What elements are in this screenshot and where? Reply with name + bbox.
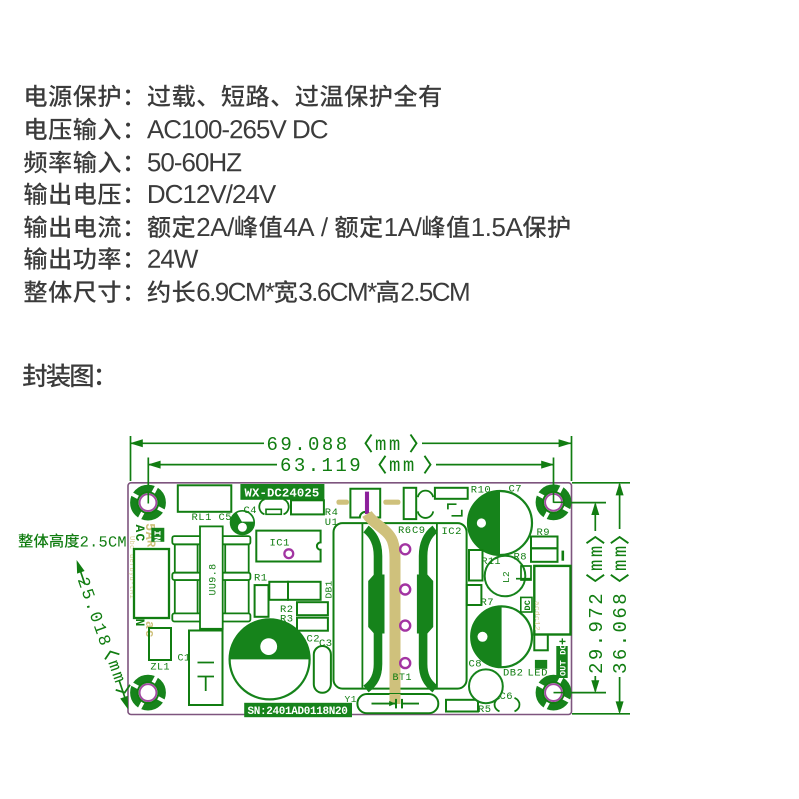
svg-text:C8: C8 [469, 659, 483, 671]
svg-text:L2: L2 [501, 571, 512, 583]
svg-text:SN:2401AD0118N20: SN:2401AD0118N20 [248, 706, 348, 718]
svg-text:C4: C4 [244, 505, 258, 517]
svg-text:mm: mm [586, 543, 608, 571]
svg-text:IC2: IC2 [442, 526, 462, 538]
svg-text:36.068: 36.068 [610, 591, 632, 674]
svg-text:acdc12: acdc12 [532, 601, 540, 631]
svg-text:mm: mm [610, 543, 632, 571]
svg-text:69.088: 69.088 [267, 434, 350, 456]
svg-text:mm: mm [375, 434, 403, 456]
svg-text:R7: R7 [481, 597, 495, 609]
svg-text:C3: C3 [319, 638, 333, 650]
svg-text:ZL1: ZL1 [151, 663, 171, 674]
svg-text:DC: DC [523, 600, 533, 611]
svg-text:R9: R9 [537, 527, 551, 539]
svg-text:C9: C9 [412, 525, 426, 537]
svg-text:R5: R5 [478, 704, 492, 716]
svg-text:C1: C1 [178, 654, 191, 665]
svg-text:IN: IN [152, 530, 163, 542]
svg-text:DB2: DB2 [503, 668, 523, 680]
svg-text:WX-DC24025: WX-DC24025 [245, 487, 320, 501]
svg-text:OUT DC: OUT DC [559, 644, 569, 676]
svg-text:29.972: 29.972 [586, 591, 608, 674]
svg-text:LED: LED [528, 668, 548, 680]
svg-text:C7: C7 [509, 484, 523, 496]
svg-text:IC1: IC1 [270, 538, 290, 550]
svg-text:BT1: BT1 [393, 673, 413, 684]
svg-text:UU9.8: UU9.8 [209, 563, 220, 595]
svg-text:R1: R1 [254, 572, 268, 584]
svg-text:R11: R11 [482, 557, 502, 568]
svg-text:+: + [557, 638, 571, 645]
svg-text:R6: R6 [398, 525, 412, 537]
svg-text:RL1: RL1 [192, 512, 212, 524]
svg-text:mm: mm [389, 455, 417, 477]
svg-text:63.119: 63.119 [280, 455, 363, 477]
svg-text:R8: R8 [514, 552, 528, 564]
